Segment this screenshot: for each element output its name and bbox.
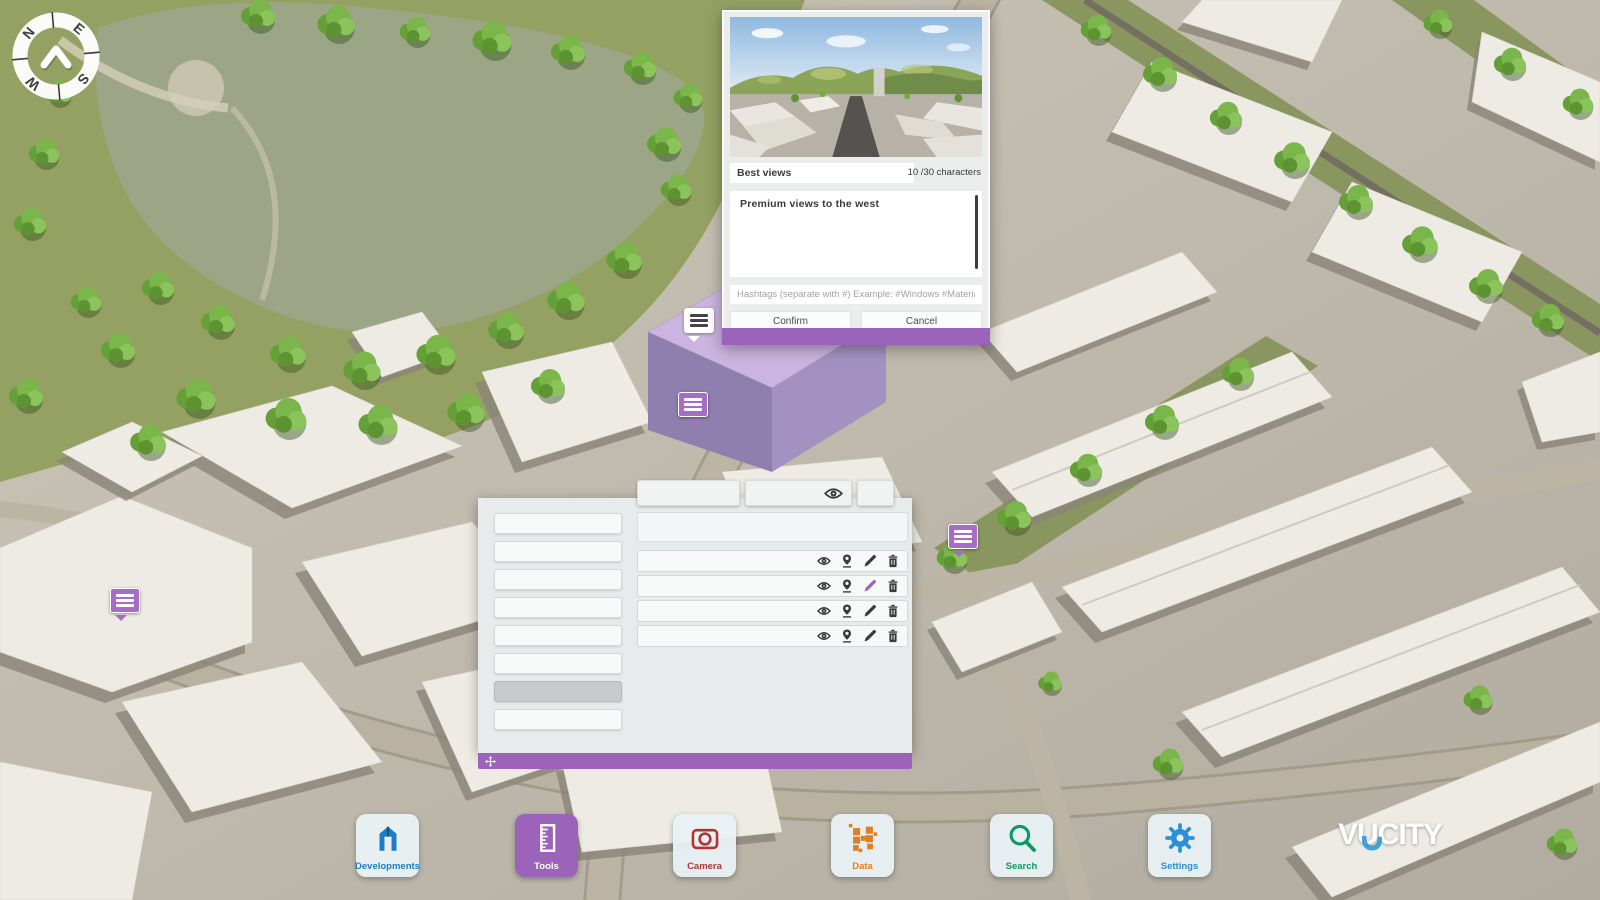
note-title-input[interactable] — [730, 163, 914, 183]
panel-header-button-2[interactable] — [857, 480, 894, 506]
toolbar-item-label: Settings — [1161, 861, 1198, 872]
note-row[interactable] — [637, 550, 908, 572]
eye-icon[interactable] — [816, 603, 832, 619]
tools-panel-left-column — [494, 513, 622, 730]
map-note-marker[interactable] — [948, 524, 978, 549]
delete-trash-icon[interactable] — [885, 628, 901, 644]
toolbar-item-label: Developments — [355, 861, 420, 872]
map-note-marker[interactable] — [678, 392, 708, 417]
panel-tool-button-4[interactable] — [494, 597, 622, 618]
toolbar-item-data[interactable]: Data — [831, 814, 894, 877]
delete-trash-icon[interactable] — [885, 603, 901, 619]
move-icon — [485, 756, 496, 767]
panel-header-button-visibility[interactable] — [745, 480, 852, 506]
location-pin-icon[interactable] — [839, 628, 855, 644]
panel-tool-button-7-selected[interactable] — [494, 681, 622, 702]
toolbar-item-search[interactable]: Search — [990, 814, 1053, 877]
edit-pencil-icon[interactable] — [862, 553, 878, 569]
delete-trash-icon[interactable] — [885, 578, 901, 594]
gear-settings-icon — [1163, 821, 1197, 855]
tools-panel — [478, 498, 912, 753]
edit-pencil-icon-active[interactable] — [862, 578, 878, 594]
panel-tool-button-1[interactable] — [494, 513, 622, 534]
location-pin-icon[interactable] — [839, 578, 855, 594]
preview-3d-scene — [730, 17, 982, 157]
ruler-tools-icon — [530, 821, 564, 855]
logo-swoosh — [1362, 836, 1382, 852]
developments-icon — [371, 821, 405, 855]
note-row[interactable] — [637, 625, 908, 647]
camera-icon — [687, 821, 723, 855]
panel-tool-button-2[interactable] — [494, 541, 622, 562]
toolbar-item-label: Data — [852, 861, 873, 872]
panel-tool-button-3[interactable] — [494, 569, 622, 590]
note-description-textarea[interactable]: Premium views to the west — [730, 191, 982, 277]
toolbar-item-tools[interactable]: Tools — [515, 814, 578, 877]
eye-icon[interactable] — [816, 578, 832, 594]
toolbar-item-camera[interactable]: Camera — [673, 814, 736, 877]
toolbar-item-settings[interactable]: Settings — [1148, 814, 1211, 877]
location-pin-icon[interactable] — [839, 553, 855, 569]
eye-icon — [824, 487, 843, 500]
map-note-marker[interactable] — [110, 588, 140, 613]
annotation-dialog: 10 /30 characters Premium views to the w… — [722, 10, 990, 345]
map-note-marker[interactable] — [684, 308, 714, 333]
toolbar-item-label: Tools — [534, 861, 559, 872]
panel-tool-button-5[interactable] — [494, 625, 622, 646]
eye-icon[interactable] — [816, 553, 832, 569]
eye-icon[interactable] — [816, 628, 832, 644]
toolbar-item-developments[interactable]: Developments — [356, 814, 419, 877]
panel-tool-button-6[interactable] — [494, 653, 622, 674]
note-list — [637, 550, 908, 647]
character-counter: 10 /30 characters — [908, 163, 981, 183]
panel-drag-bar[interactable] — [478, 753, 912, 769]
logo-text: VUCITY — [1338, 818, 1442, 852]
compass[interactable]: N E S W — [6, 6, 106, 106]
textarea-scrollbar[interactable] — [975, 195, 978, 269]
note-title-field[interactable] — [637, 512, 908, 542]
data-icon — [846, 821, 880, 855]
note-row[interactable] — [637, 600, 908, 622]
toolbar-item-label: Camera — [687, 861, 722, 872]
vucity-logo: VUCITY — [1338, 812, 1468, 858]
panel-header-button-1[interactable] — [637, 480, 740, 506]
note-row-editing[interactable] — [637, 575, 908, 597]
annotation-view-preview — [730, 17, 982, 157]
toolbar-item-label: Search — [1006, 861, 1038, 872]
edit-pencil-icon[interactable] — [862, 628, 878, 644]
delete-trash-icon[interactable] — [885, 553, 901, 569]
tools-panel-header — [637, 480, 894, 506]
location-pin-icon[interactable] — [839, 603, 855, 619]
edit-pencil-icon[interactable] — [862, 603, 878, 619]
panel-tool-button-8[interactable] — [494, 709, 622, 730]
dialog-footer-bar — [722, 328, 990, 345]
hashtags-input[interactable] — [730, 285, 982, 304]
search-icon — [1005, 821, 1039, 855]
